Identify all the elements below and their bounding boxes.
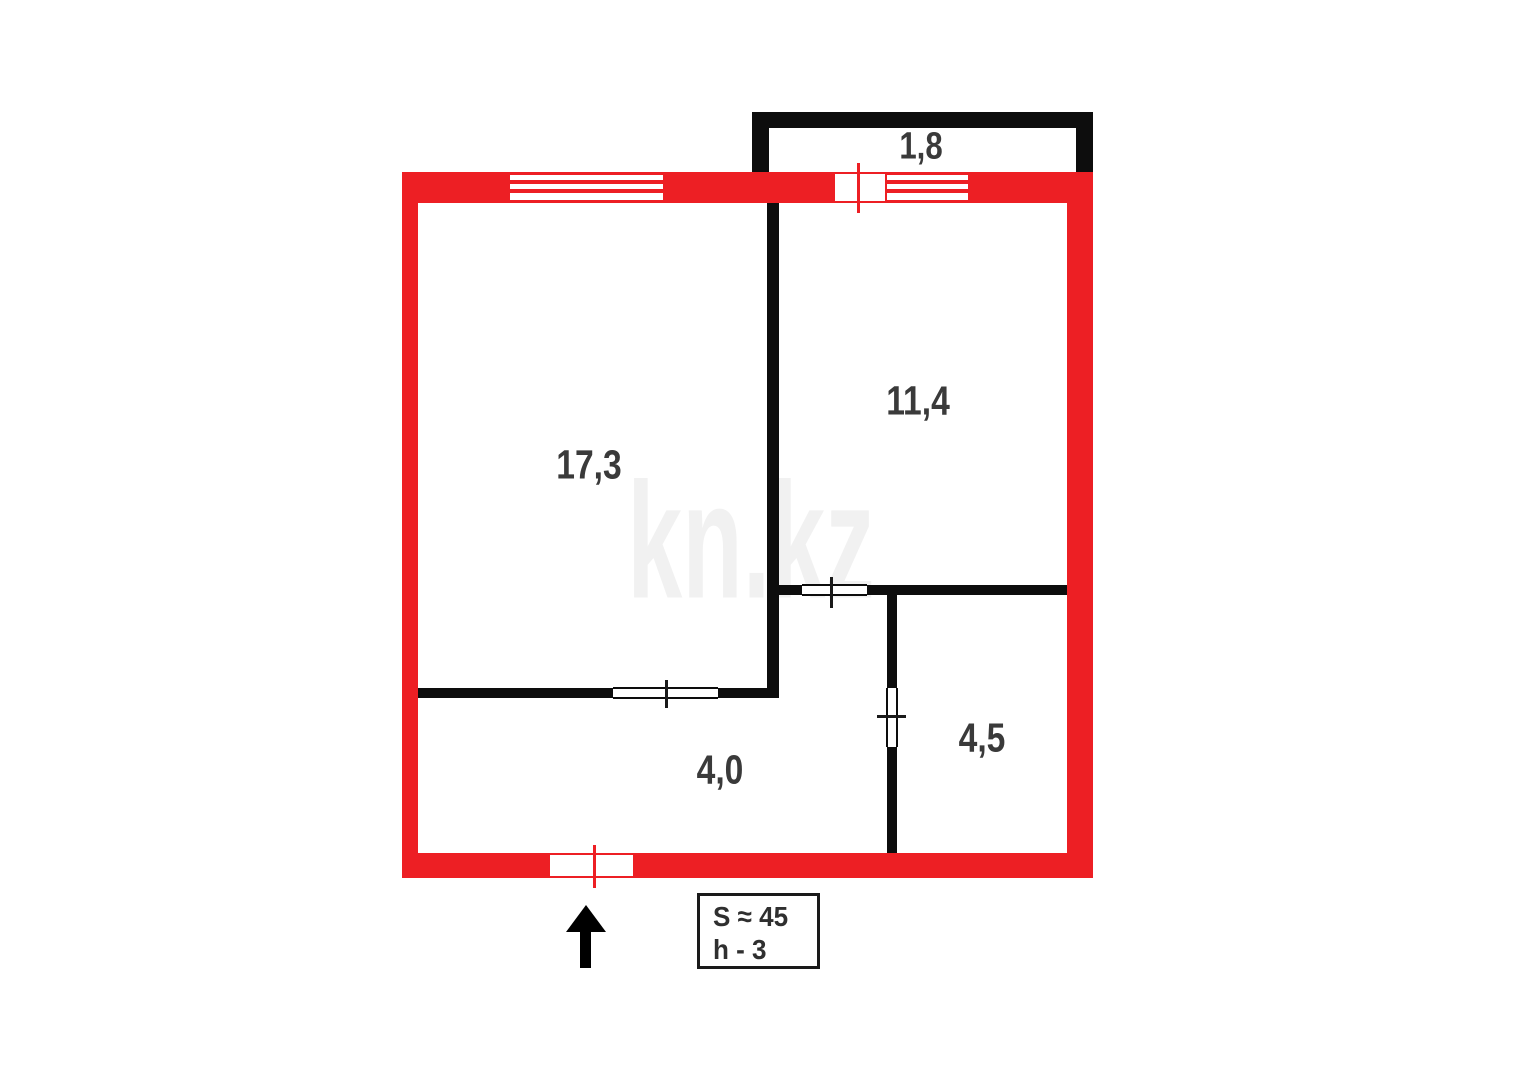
entrance-door-opening bbox=[548, 853, 635, 878]
exterior-wall-left bbox=[402, 172, 418, 878]
balcony-wall-right bbox=[1076, 112, 1093, 172]
room-label-bedroom: 11,4 bbox=[886, 378, 950, 425]
exterior-wall-bottom bbox=[402, 853, 1093, 878]
room-label-bathroom: 4,5 bbox=[959, 715, 1006, 762]
balcony-door-opening bbox=[833, 172, 887, 203]
interior-wall-living-bedroom bbox=[767, 203, 779, 697]
legend-box: S ≈ 45 h - 3 bbox=[697, 893, 820, 969]
window-icon bbox=[510, 172, 663, 203]
balcony-window-icon bbox=[887, 172, 968, 203]
arrow-up-stem bbox=[580, 926, 591, 968]
entrance-door-tick bbox=[593, 845, 596, 888]
legend-ceiling-height: h - 3 bbox=[713, 933, 810, 966]
room-label-balcony: 1,8 bbox=[899, 126, 942, 169]
balcony-door-tick bbox=[857, 163, 860, 213]
bedroom-door-opening bbox=[802, 584, 867, 596]
room-label-living: 17,3 bbox=[556, 442, 621, 489]
exterior-wall-right bbox=[1067, 172, 1093, 878]
living-room-door-tick bbox=[665, 680, 668, 708]
exterior-wall-top bbox=[402, 172, 1093, 203]
interior-wall-living-hallway bbox=[418, 688, 779, 698]
legend-total-area: S ≈ 45 bbox=[713, 900, 810, 933]
floor-plan: kn.kz 17,3 bbox=[0, 0, 1516, 1080]
bedroom-door-tick bbox=[830, 577, 833, 608]
bathroom-door-tick bbox=[877, 715, 906, 718]
room-label-hallway: 4,0 bbox=[697, 747, 744, 794]
plan-layer: 17,3 11,4 4,0 4,5 1,8 S ≈ 45 h - 3 bbox=[0, 0, 1516, 1080]
